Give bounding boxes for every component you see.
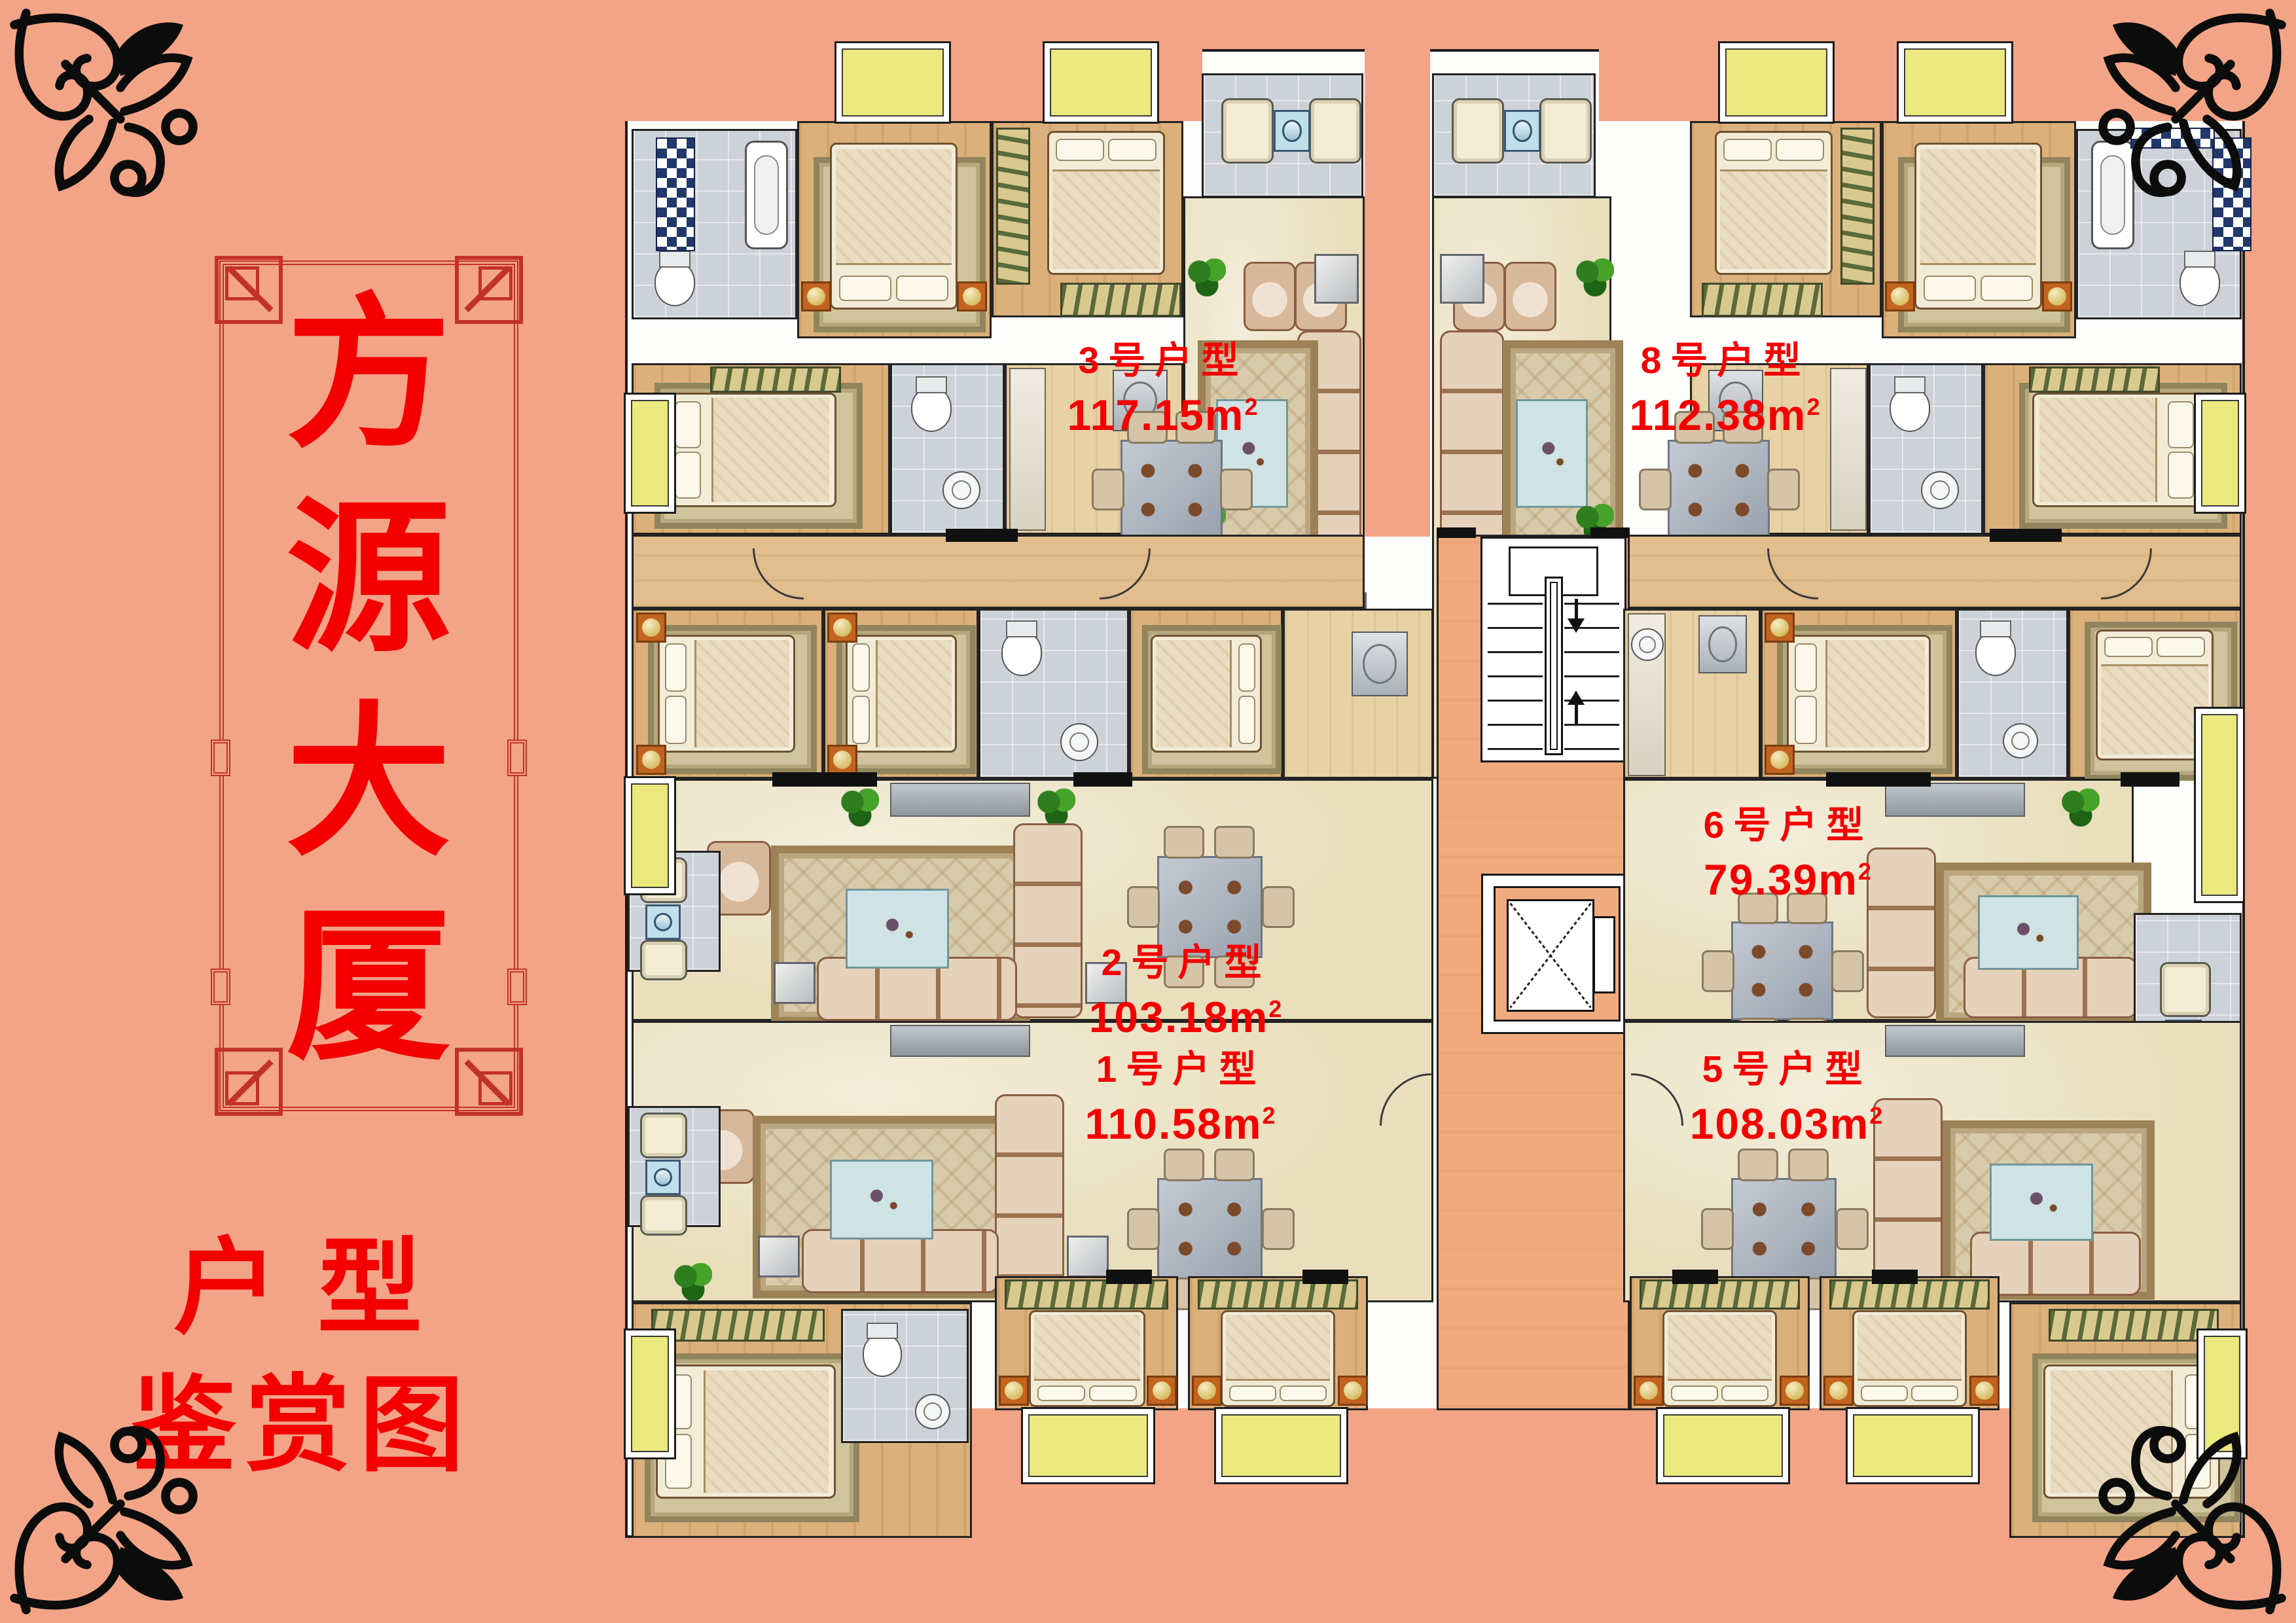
balcony-table [645, 1160, 681, 1195]
frame-knot-ornament [211, 740, 230, 776]
lounge-chair [640, 940, 687, 980]
bathroom [890, 363, 1005, 535]
bed [830, 143, 958, 310]
blanket [1156, 640, 1232, 747]
dining-table [1668, 440, 1770, 541]
unit-name: 3号户型 [1065, 330, 1261, 384]
area-value: 112.38 [1630, 391, 1767, 439]
kitchen-counter [1830, 368, 1867, 531]
plan-notch [1365, 48, 1430, 537]
blanket [704, 1370, 829, 1493]
blanket [1034, 1315, 1140, 1381]
area-value: 110.58 [1085, 1099, 1223, 1148]
plant-icon [841, 789, 879, 827]
pillow [839, 276, 891, 301]
blanket [2101, 664, 2208, 755]
pillow [1037, 1385, 1085, 1401]
wall-segment [946, 529, 1018, 542]
blanket [1825, 640, 1925, 747]
pillow [1723, 139, 1772, 161]
blanket [1857, 1315, 1962, 1381]
bed [666, 393, 836, 507]
blanket [1226, 1315, 1330, 1381]
pillow [1280, 1385, 1327, 1401]
pillow [2104, 637, 2153, 657]
plant-icon [1576, 259, 1614, 296]
tv-cabinet [890, 1025, 1030, 1057]
pillow [1229, 1385, 1276, 1401]
bed [658, 635, 795, 753]
wall-segment [1106, 1270, 1152, 1284]
bed [1029, 1310, 1145, 1407]
bathtub [745, 141, 788, 249]
lounge-chair [640, 1113, 687, 1158]
side-table [1314, 254, 1359, 304]
nightstand [1634, 1376, 1664, 1406]
blanket [1668, 1315, 1772, 1381]
sink [2003, 723, 2038, 758]
balcony [1021, 1407, 1155, 1484]
balcony [624, 393, 676, 514]
title-char: 源 [286, 478, 451, 682]
toilet [1001, 632, 1042, 676]
nightstand [1338, 1376, 1368, 1406]
armchair [1244, 262, 1296, 331]
pillow [1861, 1385, 1908, 1401]
unit-area: 108.03m2 [1689, 1093, 1885, 1147]
plant-icon [674, 1263, 712, 1301]
toilet [863, 1334, 902, 1377]
side-table [1067, 1236, 1109, 1277]
blanket [876, 640, 952, 747]
pillow [675, 401, 701, 448]
pillow [896, 276, 948, 301]
armchair [1504, 262, 1556, 331]
area-exponent: 2 [1806, 393, 1821, 420]
wall-segment [1073, 772, 1132, 787]
wall-segment [1872, 1270, 1918, 1284]
pillow [1089, 1385, 1137, 1401]
wardrobe [1640, 1279, 1800, 1310]
lounge-chair [640, 1195, 687, 1236]
nightstand [1969, 1376, 2000, 1406]
unit-area: 79.39m2 [1690, 849, 1886, 902]
pillow [852, 696, 870, 744]
unit-label: 1号户型 110.58m2 [1083, 1039, 1279, 1147]
pillow [1911, 1385, 1958, 1401]
side-table [758, 1236, 800, 1277]
blanket [711, 398, 829, 502]
dining-chair [1639, 469, 1672, 510]
frame-corner-ornament [215, 256, 283, 324]
side-table [1440, 254, 1484, 304]
pillow [1924, 276, 1976, 301]
plant-icon [1037, 789, 1075, 827]
nightstand [957, 281, 987, 312]
nightstand [801, 281, 831, 312]
title-char: 大 [286, 682, 451, 886]
bed [1914, 143, 2042, 310]
dining-chair [1220, 469, 1253, 510]
area-unit: m [1830, 1099, 1870, 1148]
balcony-floor [2201, 714, 2238, 896]
area-exponent: 2 [1244, 393, 1259, 420]
area-unit: m [1205, 391, 1245, 439]
balcony-floor [842, 48, 944, 116]
blanket [836, 149, 952, 265]
dining-chair [1767, 469, 1800, 510]
dining-chair [1092, 469, 1124, 510]
sink [1631, 628, 1664, 661]
pillow [1108, 139, 1157, 161]
unit-name: 6号户型 [1690, 795, 1886, 849]
dining-chair [1127, 886, 1160, 928]
blanket [1052, 169, 1160, 269]
area-unit: m [1767, 391, 1807, 439]
elevator [1481, 874, 1633, 1034]
wardrobe [1840, 128, 1874, 285]
area-exponent: 2 [1869, 1102, 1884, 1129]
pillow [1238, 696, 1256, 744]
unit-label: 2号户型 103.18m2 [1088, 933, 1284, 1040]
plant-icon [2062, 789, 2100, 827]
balcony [624, 1329, 676, 1459]
bed [656, 1364, 836, 1499]
unit-name: 8号户型 [1627, 330, 1823, 384]
balcony-floor [1853, 1414, 1973, 1477]
balcony-floor [631, 783, 669, 888]
title-char: 厦 [286, 886, 451, 1090]
building-title: 方 源 大 厦 [280, 274, 457, 1090]
unit-area: 117.15m2 [1065, 384, 1261, 438]
lounge-chair [1539, 98, 1592, 164]
area-value: 117.15 [1067, 391, 1205, 439]
tv-cabinet [1885, 1025, 2025, 1057]
dining-chair [1836, 1208, 1869, 1250]
balcony [1846, 1407, 1980, 1484]
pillow [1056, 139, 1104, 161]
nightstand [1765, 613, 1795, 643]
wardrobe [651, 1309, 825, 1342]
balcony-floor [1725, 48, 1827, 116]
balcony-floor [1663, 1414, 1783, 1477]
washing-machine [1352, 632, 1408, 696]
unit-area: 112.38m2 [1627, 384, 1823, 438]
unit-label: 3号户型 117.15m2 [1065, 330, 1261, 438]
balcony [1656, 1407, 1790, 1484]
nightstand [1147, 1376, 1177, 1406]
wall-segment [1826, 772, 1931, 787]
unit-name: 1号户型 [1083, 1039, 1279, 1093]
wall-segment [1437, 527, 1476, 538]
pillow [2168, 452, 2194, 499]
wall-segment [2121, 772, 2179, 787]
stair-up-arrow-icon [1568, 690, 1585, 705]
stair-down-arrow-icon [1575, 599, 1578, 618]
elevator-door [1593, 916, 1615, 993]
bathroom [841, 1309, 969, 1443]
bay-window [656, 137, 695, 251]
wall-segment [1590, 527, 1630, 538]
unit-label: 5号户型 108.03m2 [1689, 1039, 1885, 1147]
area-unit: m [1818, 855, 1858, 904]
toilet [1890, 387, 1930, 432]
wardrobe [710, 366, 841, 393]
blanket [2039, 398, 2157, 502]
dining-chair [1262, 886, 1295, 928]
area-value: 103.18 [1089, 993, 1229, 1041]
sofa [995, 1094, 1064, 1294]
pillow [2168, 401, 2194, 448]
dining-chair [1164, 826, 1204, 859]
bed [846, 635, 957, 753]
dining-chair [1214, 1149, 1255, 1181]
nightstand [999, 1376, 1029, 1406]
balcony-floor [1050, 48, 1152, 116]
coffee-table [830, 1160, 933, 1240]
unit-name: 5号户型 [1689, 1039, 1885, 1093]
nightstand [1885, 281, 1915, 312]
balcony [1718, 41, 1835, 124]
area-value: 108.03 [1690, 1099, 1830, 1148]
bed [1151, 635, 1262, 753]
lounge-chair [1309, 98, 1361, 164]
wall-segment [1302, 1270, 1348, 1284]
frame-knot-ornament [507, 740, 527, 776]
poster-canvas: 3号户型 117.15m2 8号户型 112.38m2 2号户型 103.18m… [0, 0, 2296, 1623]
unit-area: 103.18m2 [1088, 986, 1284, 1040]
dining-chair [1788, 1149, 1829, 1181]
dining-table [1121, 440, 1223, 541]
coffee-table [1978, 895, 2079, 970]
area-exponent: 2 [1858, 858, 1873, 885]
tv-cabinet [890, 783, 1030, 817]
dining-table [1731, 921, 1833, 1020]
bed [2032, 393, 2202, 507]
balcony-floor [631, 1336, 669, 1452]
sofa [1013, 823, 1083, 1018]
nightstand [1192, 1376, 1222, 1406]
toilet [655, 262, 695, 306]
area-exponent: 2 [1262, 1102, 1276, 1129]
area-exponent: 2 [1268, 995, 1283, 1022]
area-unit: m [1229, 993, 1269, 1041]
side-table [774, 962, 816, 1004]
bathroom [1869, 363, 1983, 535]
nightstand [827, 745, 857, 775]
pillow [1776, 139, 1824, 161]
pillow [1795, 643, 1817, 692]
area-value: 79.39 [1704, 855, 1818, 904]
bed [1787, 635, 1931, 753]
unit-label: 6号户型 79.39m2 [1690, 795, 1886, 902]
dining-chair [1164, 1149, 1204, 1181]
balcony-floor [2201, 400, 2239, 507]
dining-chair [1214, 826, 1255, 859]
stove [1698, 615, 1747, 673]
bathroom [978, 609, 1129, 779]
tv-cabinet [1885, 783, 2025, 817]
stair-rail [1545, 577, 1563, 755]
dining-chair [1701, 1208, 1734, 1250]
staircase [1480, 537, 1626, 762]
corner-flourish-icon [7, 5, 203, 202]
pillow [2157, 637, 2205, 657]
lounge-chair [2160, 962, 2211, 1017]
unit-label: 8号户型 112.38m2 [1627, 330, 1823, 438]
bed [1047, 131, 1165, 275]
unit-name: 2号户型 [1088, 933, 1284, 986]
dining-table [1157, 1178, 1263, 1280]
sink [942, 471, 980, 509]
dining-table [1731, 1178, 1837, 1280]
balcony-table [645, 904, 681, 940]
pillow [1795, 696, 1817, 744]
hallway [632, 535, 1365, 609]
area-unit: m [1223, 1099, 1263, 1148]
sink [915, 1394, 950, 1429]
balcony-floor [631, 400, 669, 507]
nightstand [636, 613, 666, 643]
balcony [624, 776, 676, 895]
coffee-table [1516, 399, 1588, 508]
balcony [834, 41, 951, 124]
nightstand [2042, 281, 2072, 312]
bed [1221, 1310, 1335, 1407]
toilet [2179, 262, 2220, 306]
frame-knot-ornament [211, 969, 230, 1005]
hallway [1611, 535, 2242, 609]
dining-chair [1702, 950, 1734, 992]
wardrobe [2029, 366, 2160, 393]
wardrobe [996, 128, 1030, 285]
dining-chair [1262, 1208, 1295, 1250]
dining-chair [1127, 1208, 1160, 1250]
wall-segment [1990, 529, 2062, 542]
bed [1715, 131, 1833, 275]
balcony [1897, 41, 2013, 124]
pillow [852, 643, 870, 692]
unit-area: 110.58m2 [1083, 1093, 1279, 1147]
wall-segment [772, 772, 877, 787]
pillow [1671, 1385, 1718, 1401]
balcony [2194, 707, 2245, 903]
balcony-table [1274, 110, 1310, 152]
poster-subtitle: 户型 [36, 1203, 560, 1355]
coffee-table [846, 889, 949, 969]
frame-knot-ornament [507, 969, 527, 1005]
pillow [675, 452, 701, 499]
title-char: 方 [286, 274, 451, 478]
sink [1921, 471, 1959, 509]
wall-segment [1672, 1270, 1718, 1284]
balcony-floor [1904, 48, 2006, 116]
wardrobe [1060, 283, 1181, 317]
frame-corner-ornament [455, 256, 523, 324]
pillow [665, 643, 687, 692]
wardrobe [2049, 1309, 2219, 1342]
elevator-x-icon [1509, 901, 1592, 1010]
corner-flourish-icon [2093, 5, 2289, 202]
pillow [1981, 276, 2033, 301]
bed [1662, 1310, 1777, 1407]
elevator-cab [1507, 899, 1594, 1012]
balcony-floor [1221, 1414, 1341, 1477]
blanket [1920, 149, 2037, 265]
pillow [665, 696, 687, 744]
sink [1060, 723, 1098, 761]
stair-up-arrow-icon [1575, 705, 1578, 724]
kitchen-counter [1009, 368, 1046, 531]
blanket [694, 640, 789, 747]
lounge-chair [1221, 98, 1274, 164]
nightstand [1823, 1376, 1854, 1406]
wardrobe [1702, 283, 1823, 317]
blanket [1720, 169, 1827, 269]
frame-corner-ornament [215, 1048, 283, 1116]
lounge-chair [1452, 98, 1504, 164]
bed [1852, 1310, 1967, 1407]
corner-flourish-icon [2093, 1421, 2289, 1618]
dining-chair [1738, 1149, 1778, 1181]
balcony [1214, 1407, 1348, 1484]
corner-flourish-icon [7, 1421, 203, 1618]
toilet [1975, 632, 2016, 676]
nightstand [636, 745, 666, 775]
nightstand [827, 613, 857, 643]
dining-chair [1831, 950, 1864, 992]
stair-flight [1488, 603, 1543, 754]
balcony [2194, 393, 2246, 514]
plant-icon [1188, 259, 1226, 296]
nightstand [1780, 1376, 1810, 1406]
toilet [911, 387, 952, 432]
frame-corner-ornament [455, 1048, 523, 1116]
pillow [1721, 1385, 1768, 1401]
stair-down-arrow-icon [1568, 618, 1585, 633]
nightstand [1765, 745, 1795, 775]
balcony-table [1504, 110, 1541, 152]
coffee-table [1990, 1164, 2093, 1241]
balcony [1043, 41, 1159, 124]
balcony-floor [1028, 1414, 1148, 1477]
pillow [1238, 643, 1256, 692]
